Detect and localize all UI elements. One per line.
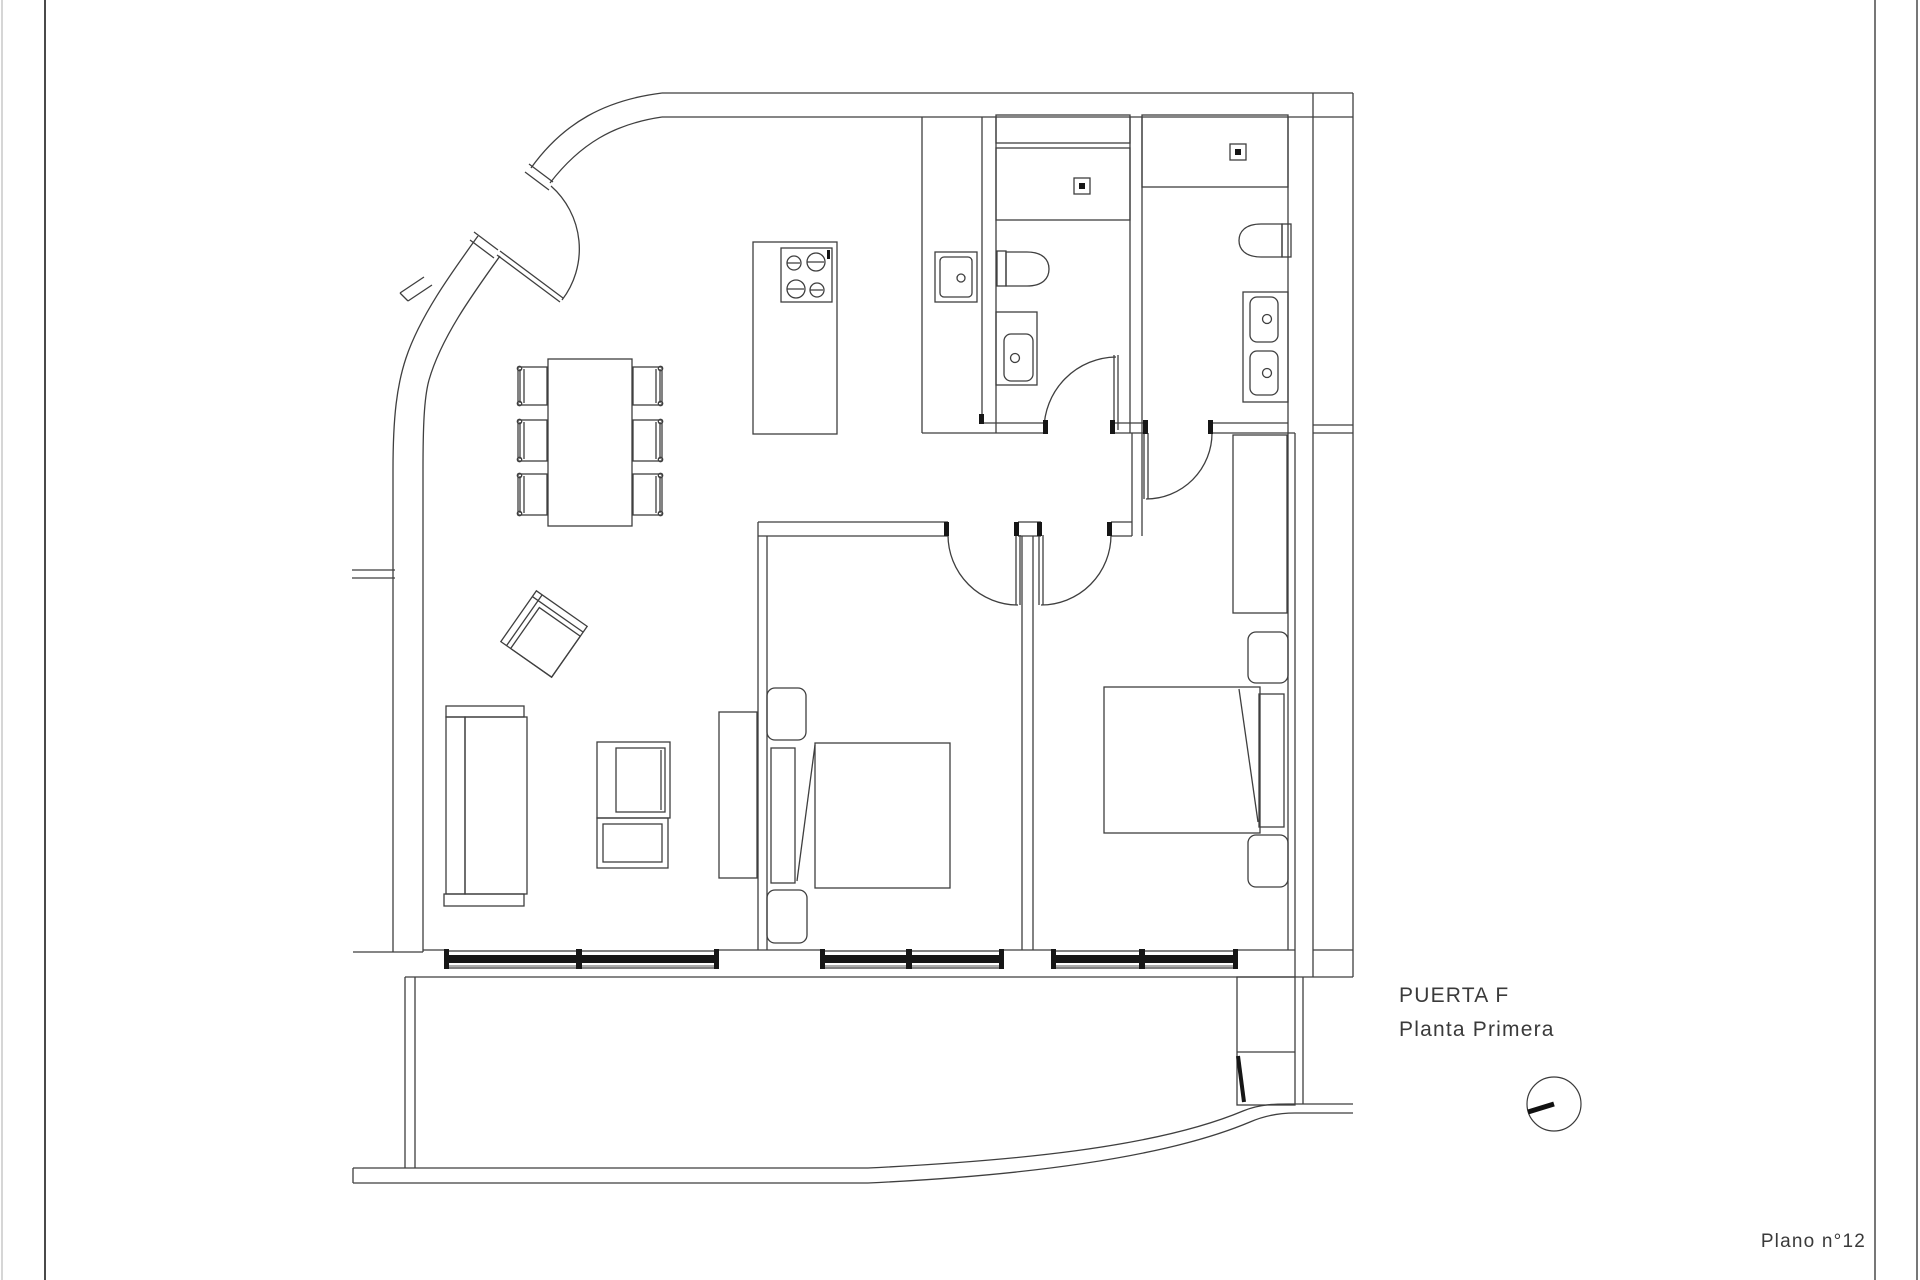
bathroom1-shower — [996, 148, 1130, 220]
dining-table — [548, 359, 632, 526]
faucet-hole — [1263, 369, 1272, 378]
page-frame — [2, 0, 1917, 1280]
window-mullion — [906, 949, 912, 969]
window-bedroom1 — [820, 949, 1004, 969]
bathroom2-door-swing-arc — [1146, 433, 1212, 499]
sofa-arm-top — [446, 706, 524, 717]
entry-door-swing-arc — [551, 186, 579, 300]
bed1-duvet-fold — [797, 745, 815, 881]
sink-outer — [935, 252, 977, 302]
dining-chairs-left — [517, 366, 547, 515]
burner-marks — [788, 262, 825, 290]
sofa-back — [446, 717, 465, 894]
armchair-back-lines — [501, 591, 587, 677]
doors — [497, 186, 1213, 605]
terrace-edge-outer — [353, 1104, 1353, 1168]
chair-back — [656, 422, 660, 459]
armchair — [501, 591, 587, 677]
armchair-frame — [501, 591, 587, 677]
sofa-arm-bottom — [444, 894, 524, 906]
window-mullion — [1139, 949, 1145, 969]
basin-bowl — [1250, 297, 1278, 342]
kitchen-sink — [935, 252, 977, 302]
bedroom1 — [767, 688, 950, 943]
chair — [518, 367, 547, 405]
window-glazing — [825, 955, 1000, 963]
wall-entry-outer-a — [531, 93, 662, 168]
jamb-block — [944, 522, 949, 536]
exterior-steps — [1237, 977, 1295, 1105]
north-indicator-icon — [1527, 1077, 1581, 1131]
double-washbasin — [1243, 292, 1288, 402]
bathroom1-door-swing-arc — [1044, 357, 1116, 430]
wall-entry-inner-b — [423, 256, 500, 952]
nightstand — [1248, 632, 1288, 683]
living-area — [444, 591, 757, 906]
window-end-post — [444, 949, 449, 969]
toilet-tank — [997, 251, 1006, 286]
entry-door-leaf — [497, 251, 563, 302]
kitchen — [753, 242, 977, 434]
toilet-bowl — [1006, 252, 1049, 286]
bathroom-partitions — [996, 117, 1295, 977]
faucet-hole — [957, 274, 965, 282]
facade-windows — [444, 949, 1238, 969]
bedroom1-door-leaf — [1016, 535, 1020, 605]
chair — [518, 420, 547, 461]
jamb-block — [979, 414, 984, 424]
window-end-post — [1233, 949, 1238, 969]
nightstand — [767, 688, 806, 740]
bathroom1 — [996, 115, 1130, 385]
plan-title: PUERTA F — [1399, 984, 1509, 1007]
sofa-seat — [465, 717, 527, 894]
toilet — [1239, 224, 1291, 257]
nightstand — [767, 890, 807, 943]
window-end-post — [999, 949, 1004, 969]
annotations: PUERTA F Planta Primera Plano n°12 — [1399, 984, 1866, 1252]
bathroom2-door-leaf — [1144, 433, 1148, 499]
basin-bowl — [1004, 334, 1033, 381]
bathroom2-door — [1144, 433, 1212, 499]
chair-back — [520, 476, 524, 513]
chair — [633, 474, 662, 515]
hall-upper-wall — [982, 423, 1295, 433]
bed2-headboard — [1259, 694, 1284, 827]
dining-chairs-right — [633, 366, 663, 515]
jamb-block — [1037, 522, 1042, 536]
shower-drain-core — [1079, 183, 1085, 189]
entry-door-jambs — [470, 164, 553, 258]
jamb-block — [1107, 522, 1112, 536]
bedroom2-door — [1039, 535, 1111, 605]
sheet-number: Plano n°12 — [1761, 1231, 1866, 1252]
wall-entry-inner-a — [550, 117, 662, 183]
bathroom1-door-leaf — [1114, 355, 1118, 430]
basin-counter — [996, 312, 1037, 385]
side-table-small-inner — [603, 824, 662, 862]
bed2-mattress — [1104, 687, 1260, 833]
jamb-block — [1043, 420, 1048, 434]
washbasin — [996, 312, 1037, 385]
cooktop — [781, 248, 832, 302]
chair — [633, 420, 662, 461]
toilet-bowl — [1239, 224, 1282, 257]
side-table-large — [597, 742, 670, 818]
bed1-headboard — [771, 748, 795, 883]
shower-drain-core — [1235, 149, 1241, 155]
terrace-edge-inner — [353, 1113, 1353, 1183]
window-end-post — [1051, 949, 1056, 969]
kitchen-counter-wall — [922, 117, 982, 433]
bathroom2-shower — [1142, 115, 1288, 187]
bedroom-divider-wall — [1022, 536, 1033, 950]
right-neighbour-strip — [1313, 93, 1353, 977]
side-table-small — [597, 818, 668, 868]
jamb-block — [1143, 420, 1148, 434]
bathroom2 — [1142, 115, 1291, 402]
side-table-large-inner — [616, 748, 665, 812]
terrace — [1237, 977, 1295, 1105]
window-end-post — [820, 949, 825, 969]
jamb-block — [1014, 522, 1019, 536]
window-bedroom2 — [1051, 949, 1238, 969]
walls — [352, 93, 1353, 1183]
tv-sideboard — [719, 712, 757, 878]
window-mullion — [576, 949, 582, 969]
bedroom1-door — [948, 535, 1020, 605]
chair-back — [520, 422, 524, 459]
bed1-mattress — [815, 743, 950, 888]
entry-door — [497, 186, 579, 302]
bedroom1-left-wall — [758, 522, 767, 950]
toilet-tank — [1282, 224, 1291, 257]
chair — [633, 367, 662, 405]
coffee-tables — [597, 742, 670, 868]
basin-bowl — [1250, 351, 1278, 395]
bathroom1-cabinet — [996, 115, 1130, 143]
door-jamb-blocks — [944, 414, 1213, 536]
nightstand — [1248, 835, 1288, 887]
armchair-seat — [511, 608, 581, 678]
cooktop-control-tick — [827, 250, 830, 259]
toilet — [997, 251, 1049, 286]
bedroom2-door-swing-arc — [1041, 535, 1111, 605]
wardrobe — [1233, 435, 1287, 613]
north-bearing-line — [1528, 1104, 1554, 1112]
bedroom1-door-swing-arc — [948, 535, 1018, 605]
chair-back — [520, 369, 524, 403]
floor-plan-canvas: PUERTA F Planta Primera Plano n°12 — [0, 0, 1920, 1280]
chair — [518, 474, 547, 515]
bed2-duvet-fold — [1239, 689, 1258, 822]
hall-vestibule-divider — [1132, 433, 1142, 536]
bathroom1-door — [1044, 355, 1118, 430]
window-end-post — [714, 949, 719, 969]
floor-subtitle: Planta Primera — [1399, 1018, 1555, 1041]
left-wall-ticks — [352, 570, 423, 952]
window-living — [444, 949, 719, 969]
kitchen-island — [753, 242, 837, 434]
terrace-side-walls — [405, 977, 1303, 1168]
bedroom2-door-leaf — [1039, 535, 1043, 605]
chair-back — [656, 369, 660, 403]
party-wall-stub — [400, 277, 432, 301]
step-hatch-mark — [1238, 1056, 1244, 1102]
sink-basin — [940, 257, 972, 297]
jamb-block — [1208, 420, 1213, 434]
chair-back — [656, 476, 660, 513]
faucet-hole — [1011, 354, 1020, 363]
jamb-block — [1110, 420, 1115, 434]
dining-area — [517, 359, 662, 526]
sofa — [444, 706, 527, 906]
faucet-hole — [1263, 315, 1272, 324]
